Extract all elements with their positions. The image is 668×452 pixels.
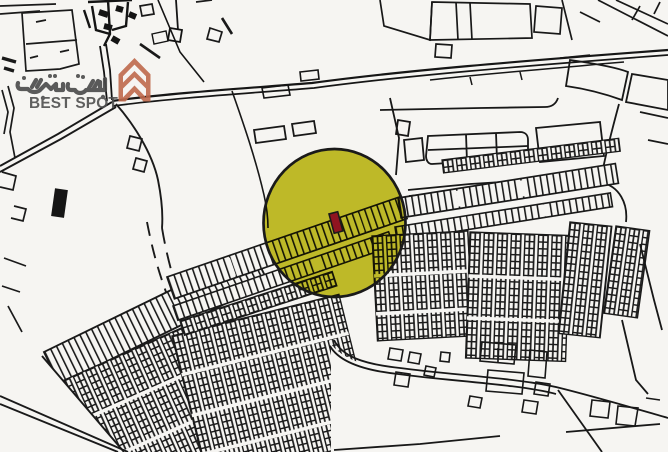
svg-text:BEST SPOT: BEST SPOT — [29, 95, 118, 112]
